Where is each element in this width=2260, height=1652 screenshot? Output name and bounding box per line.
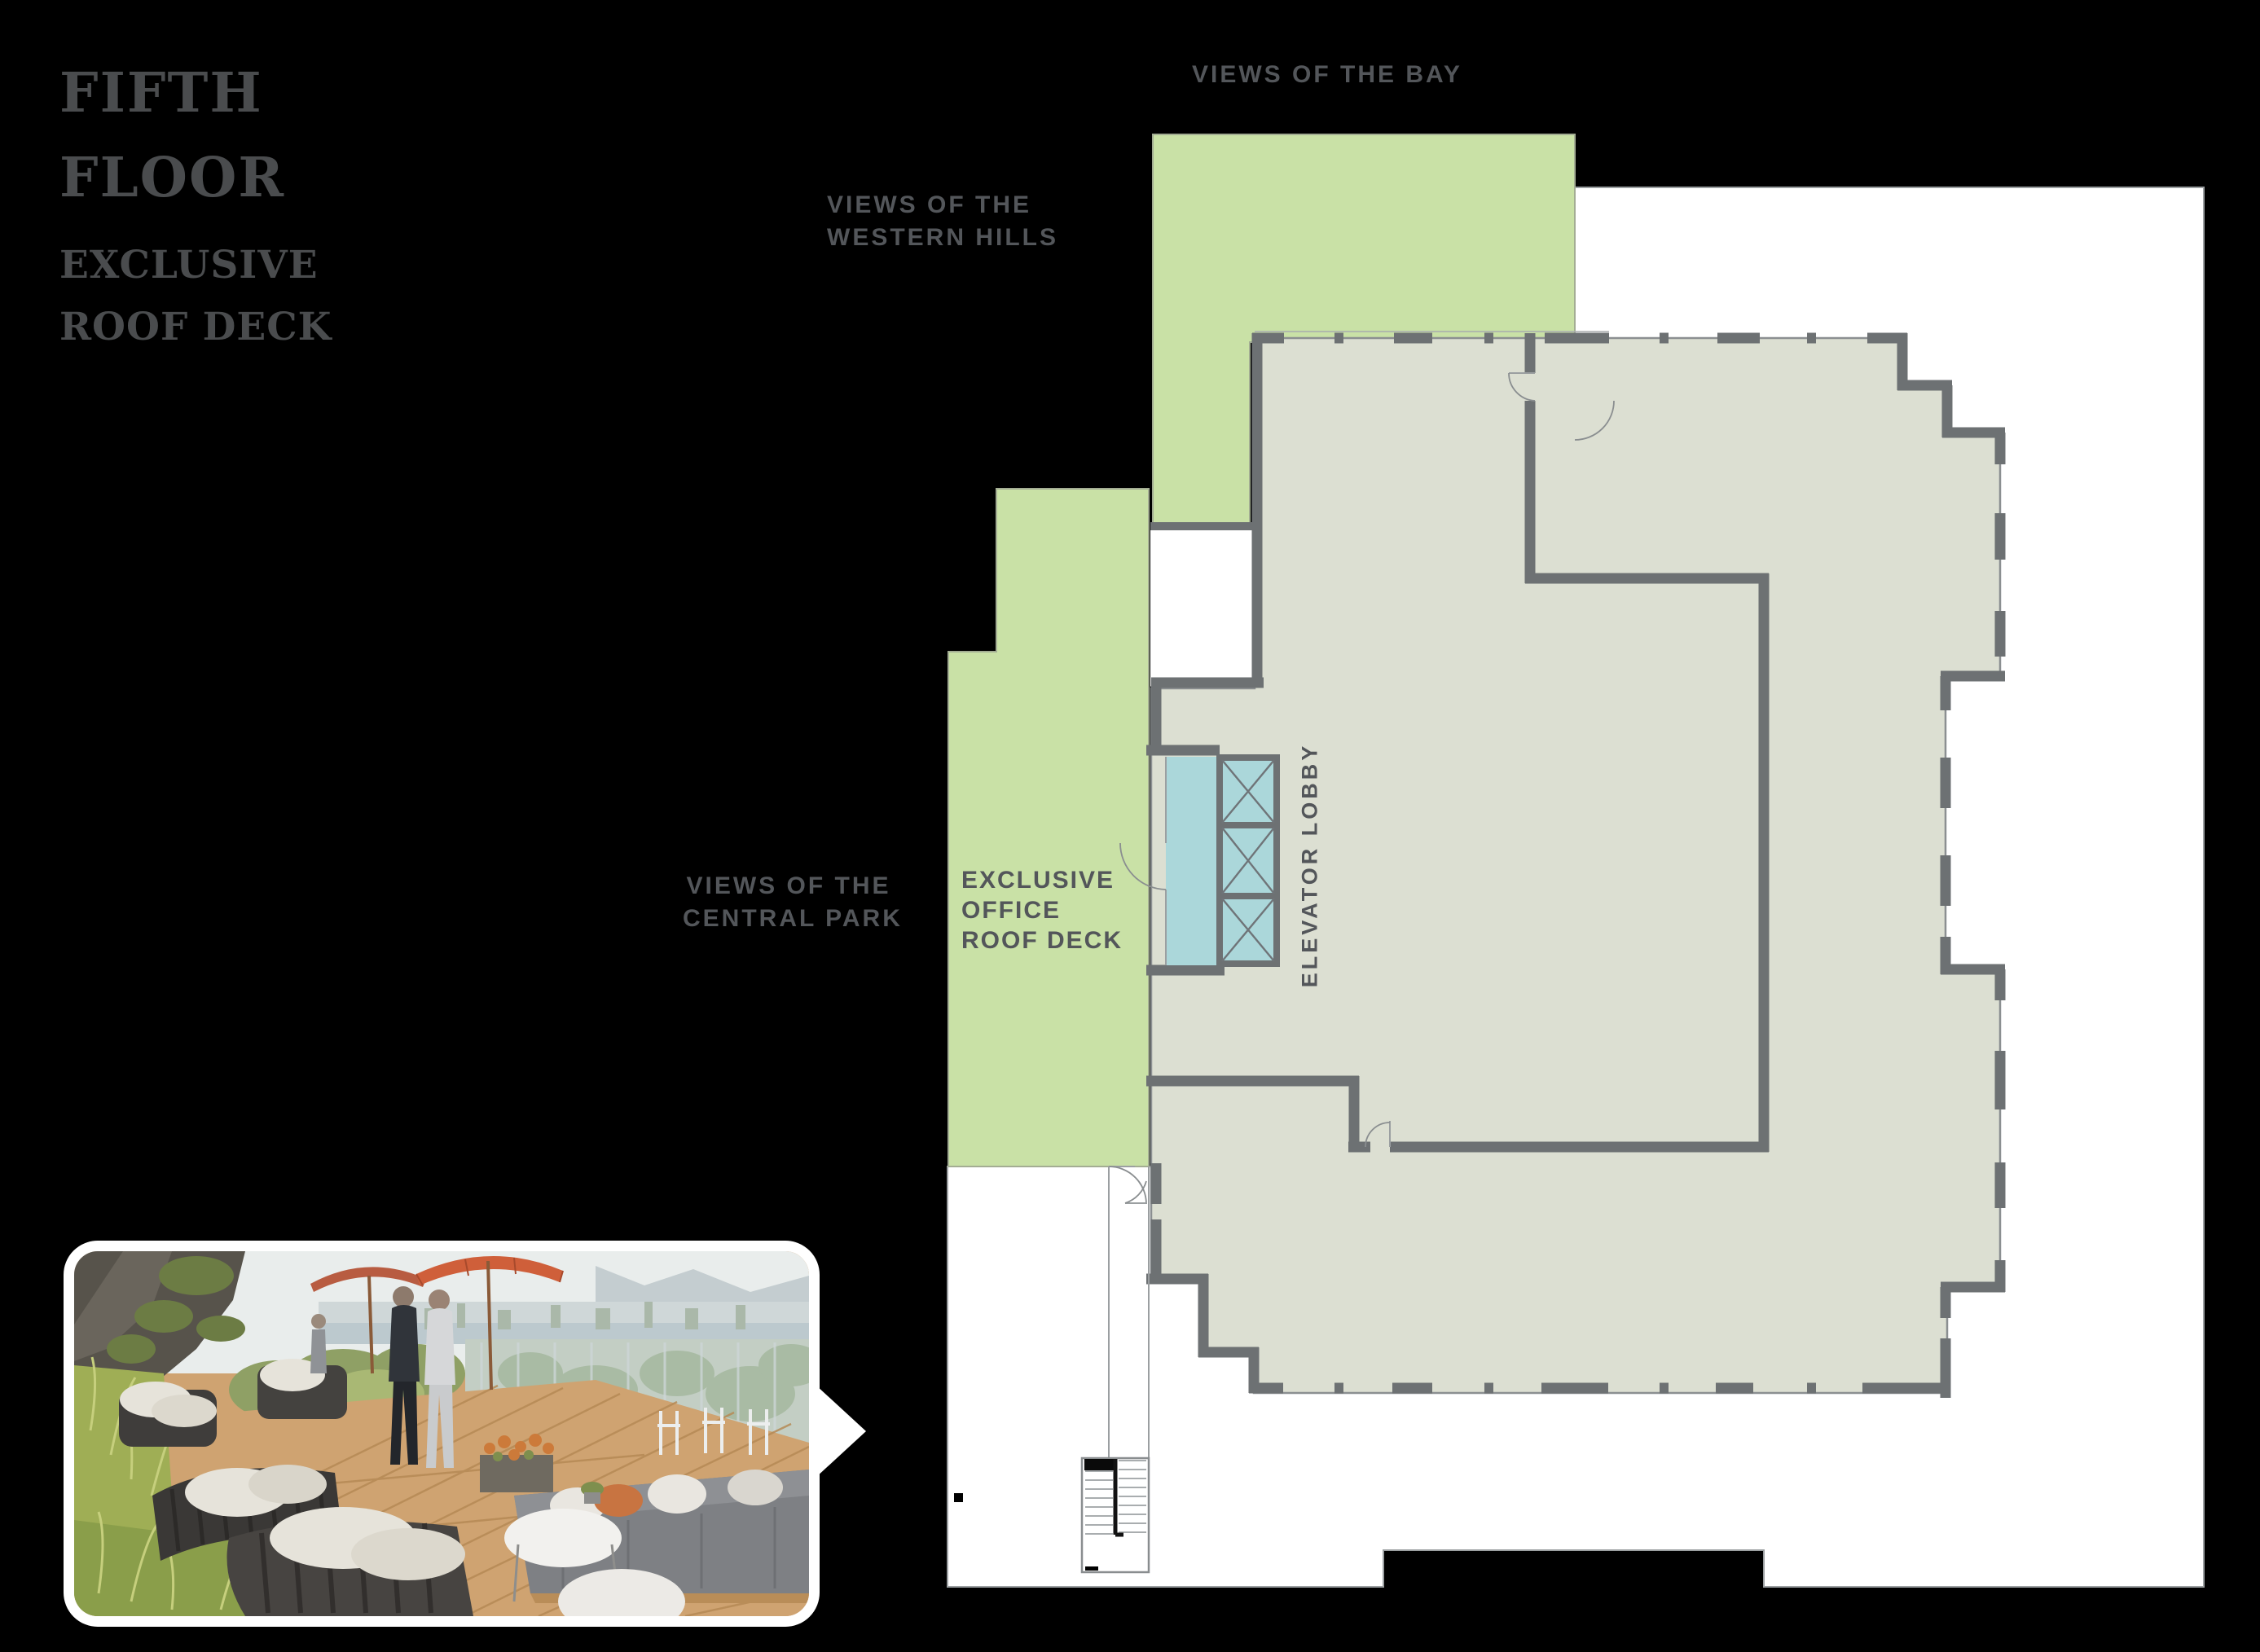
label-views-western-hills: VIEWS OF THE WESTERN HILLS [827,189,1058,254]
page-title: FIFTH FLOOR [59,51,285,220]
brochure-page: { "header": { "title_line1": "FIFTH", "t… [0,0,2260,1652]
elevator-shafts [1220,758,1277,964]
label-exclusive-office-roof-deck: EXCLUSIVE OFFICE ROOF DECK [961,865,1123,956]
subtitle-line1: EXCLUSIVE [59,235,332,297]
deck-gap-strip [1150,526,1252,687]
photo-pointer-arrow [816,1385,866,1478]
roof-deck-photo [64,1241,820,1627]
title-line1: FIFTH [59,51,285,135]
stairwell [1082,1458,1149,1572]
title-line2: FLOOR [59,135,285,220]
label-elevator-lobby: ELEVATOR LOBBY [1298,743,1323,988]
roof-deck-photo-scene [74,1251,809,1616]
plan-dot [954,1493,963,1502]
page-subtitle: EXCLUSIVE ROOF DECK [59,235,332,358]
subtitle-line2: ROOF DECK [59,297,332,358]
label-views-bay: VIEWS OF THE BAY [1192,59,1462,91]
label-views-central-park: VIEWS OF THE CENTRAL PARK [683,870,895,935]
